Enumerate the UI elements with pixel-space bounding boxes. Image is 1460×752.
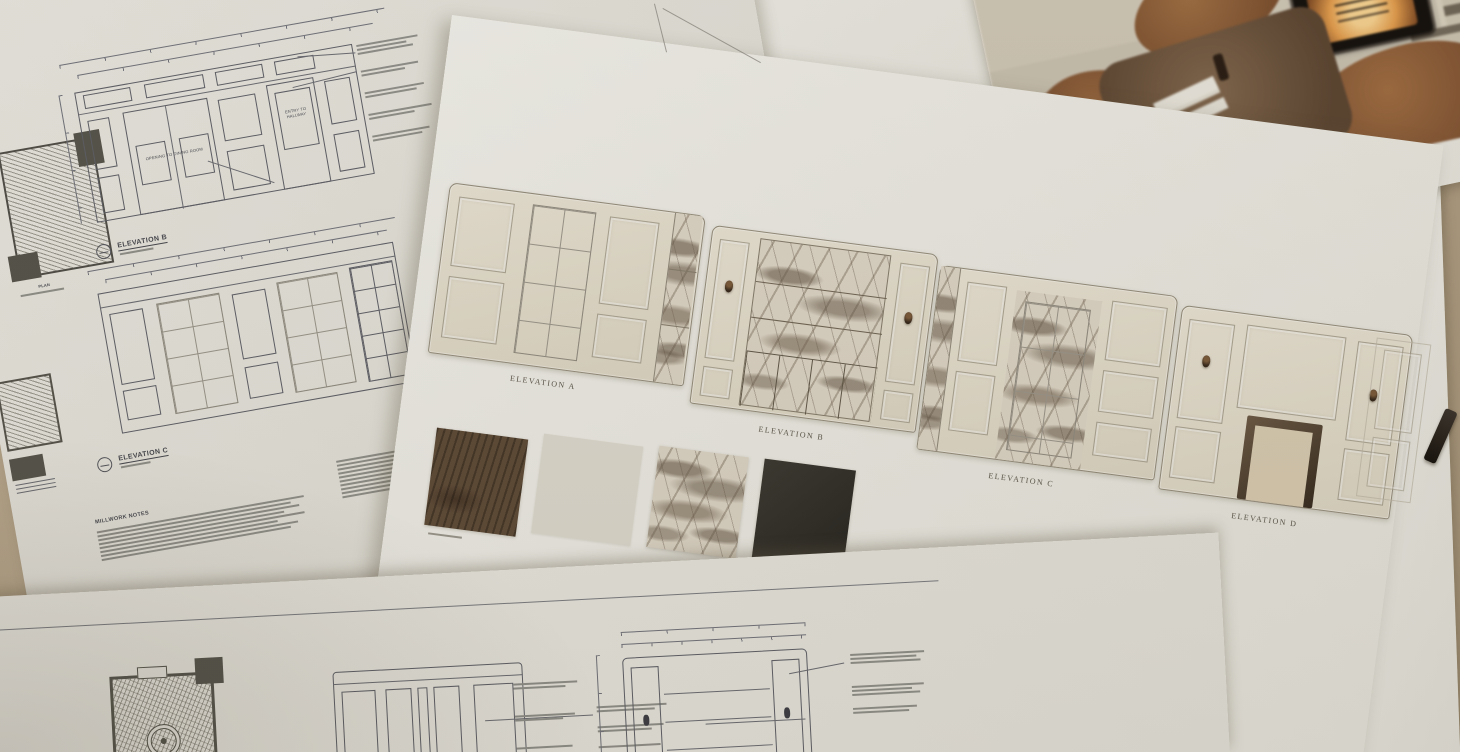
marble-door-surround	[995, 290, 1102, 470]
micro-text-line	[515, 713, 575, 718]
elevation-c-render	[916, 265, 1178, 481]
medallion-center	[161, 738, 167, 744]
dimension-line	[621, 622, 806, 636]
wall-panel	[1366, 437, 1410, 492]
wall-panel	[218, 93, 263, 141]
elevation-label: ELEVATION B	[758, 425, 825, 443]
wall-panel	[1177, 319, 1236, 424]
material-swatch-paint	[531, 434, 643, 546]
wall-panel	[592, 314, 647, 364]
door-leaf-panel	[135, 141, 171, 186]
dimension-line	[621, 634, 806, 648]
dimensioned-elevation	[622, 648, 814, 752]
marble-cabinet-row	[739, 350, 877, 423]
elevation-a-render	[428, 182, 706, 386]
fireplace-infill	[1246, 425, 1313, 507]
annotation-stack	[850, 650, 927, 716]
micro-text-line	[515, 717, 563, 722]
wall-panel	[1169, 426, 1221, 484]
wall-panel	[1105, 301, 1168, 368]
marble-joint	[669, 268, 697, 273]
sconce-symbol	[784, 707, 791, 718]
elevation-label: ELEVATION A	[510, 374, 577, 392]
wall-panel	[123, 385, 162, 420]
plan-wall-poche	[194, 657, 223, 684]
wall-panel	[1374, 350, 1422, 434]
side-panel	[473, 683, 519, 752]
marble-wall	[739, 238, 892, 422]
glazed-double-door	[513, 204, 596, 361]
ceiling-plan	[103, 657, 231, 752]
wall-panel	[948, 371, 995, 436]
micro-text-line	[517, 745, 573, 750]
elevation-c-drawing	[97, 242, 417, 434]
material-swatch-marble	[646, 446, 749, 559]
micro-text-line	[513, 685, 565, 690]
shelf-line	[756, 281, 887, 299]
overmantel-panel	[1236, 324, 1346, 420]
swatch-caption	[428, 532, 462, 538]
wall-panel	[599, 216, 660, 310]
wall-panel	[244, 361, 283, 398]
marble-joint	[661, 324, 689, 329]
annotation-stack	[513, 680, 580, 751]
cabinet-elevation	[332, 662, 529, 752]
wall-panel	[227, 145, 271, 191]
elevation-b-drawing: OPENING TO DINING ROOM ENTRY TO HALLWAY	[74, 44, 375, 223]
elevation-label: ELEVATION D	[1231, 511, 1298, 529]
shelf-line	[751, 317, 882, 335]
plan-wall-poche	[9, 454, 46, 482]
wall-panel	[957, 282, 1007, 367]
material-swatch-wood	[424, 428, 528, 537]
plan-door-notch	[137, 666, 168, 680]
pilaster-panel	[704, 239, 749, 362]
pilaster-panel	[699, 366, 733, 400]
door-leaf-panel	[179, 133, 215, 178]
wall-panel	[1092, 422, 1152, 463]
wall-panel	[1098, 370, 1159, 419]
wall-panel	[441, 276, 505, 345]
elevation-b-render	[689, 225, 939, 433]
plan-fragment	[0, 363, 84, 493]
door-opening: OPENING TO DINING ROOM	[122, 98, 225, 215]
wall-panel	[450, 197, 515, 274]
glazed-door	[1006, 301, 1091, 458]
detail-marker	[96, 456, 113, 473]
plan-body	[0, 373, 63, 452]
annotation-stack	[356, 34, 436, 144]
side-panel	[341, 690, 381, 752]
desk-scene: PLAN OPENING TO DINING ROOM	[0, 0, 1460, 752]
plan-wall-poche	[8, 252, 42, 283]
sconce-symbol	[643, 715, 650, 726]
pilaster-panel	[880, 390, 914, 424]
fireplace-render	[1237, 415, 1323, 508]
micro-text-line	[853, 709, 909, 714]
elevation-label: ELEVATION C	[988, 471, 1055, 489]
decanter	[1212, 53, 1229, 82]
